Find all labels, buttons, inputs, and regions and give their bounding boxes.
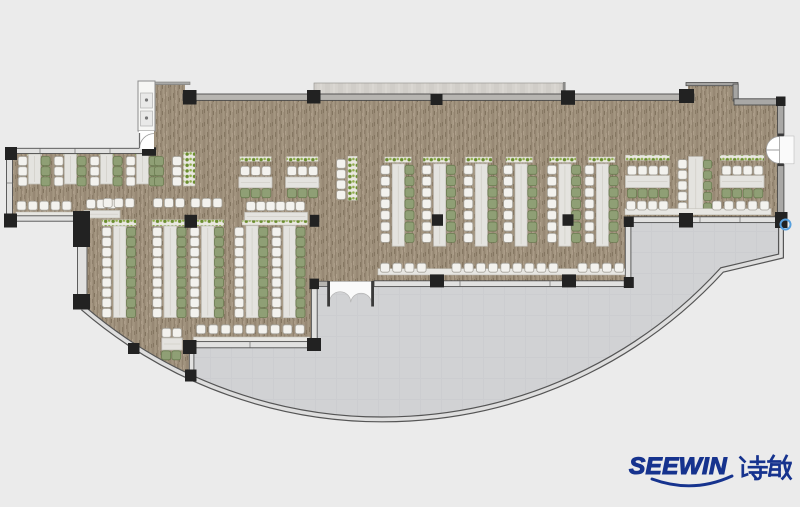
svg-text:SEEWIN: SEEWIN — [629, 453, 728, 480]
